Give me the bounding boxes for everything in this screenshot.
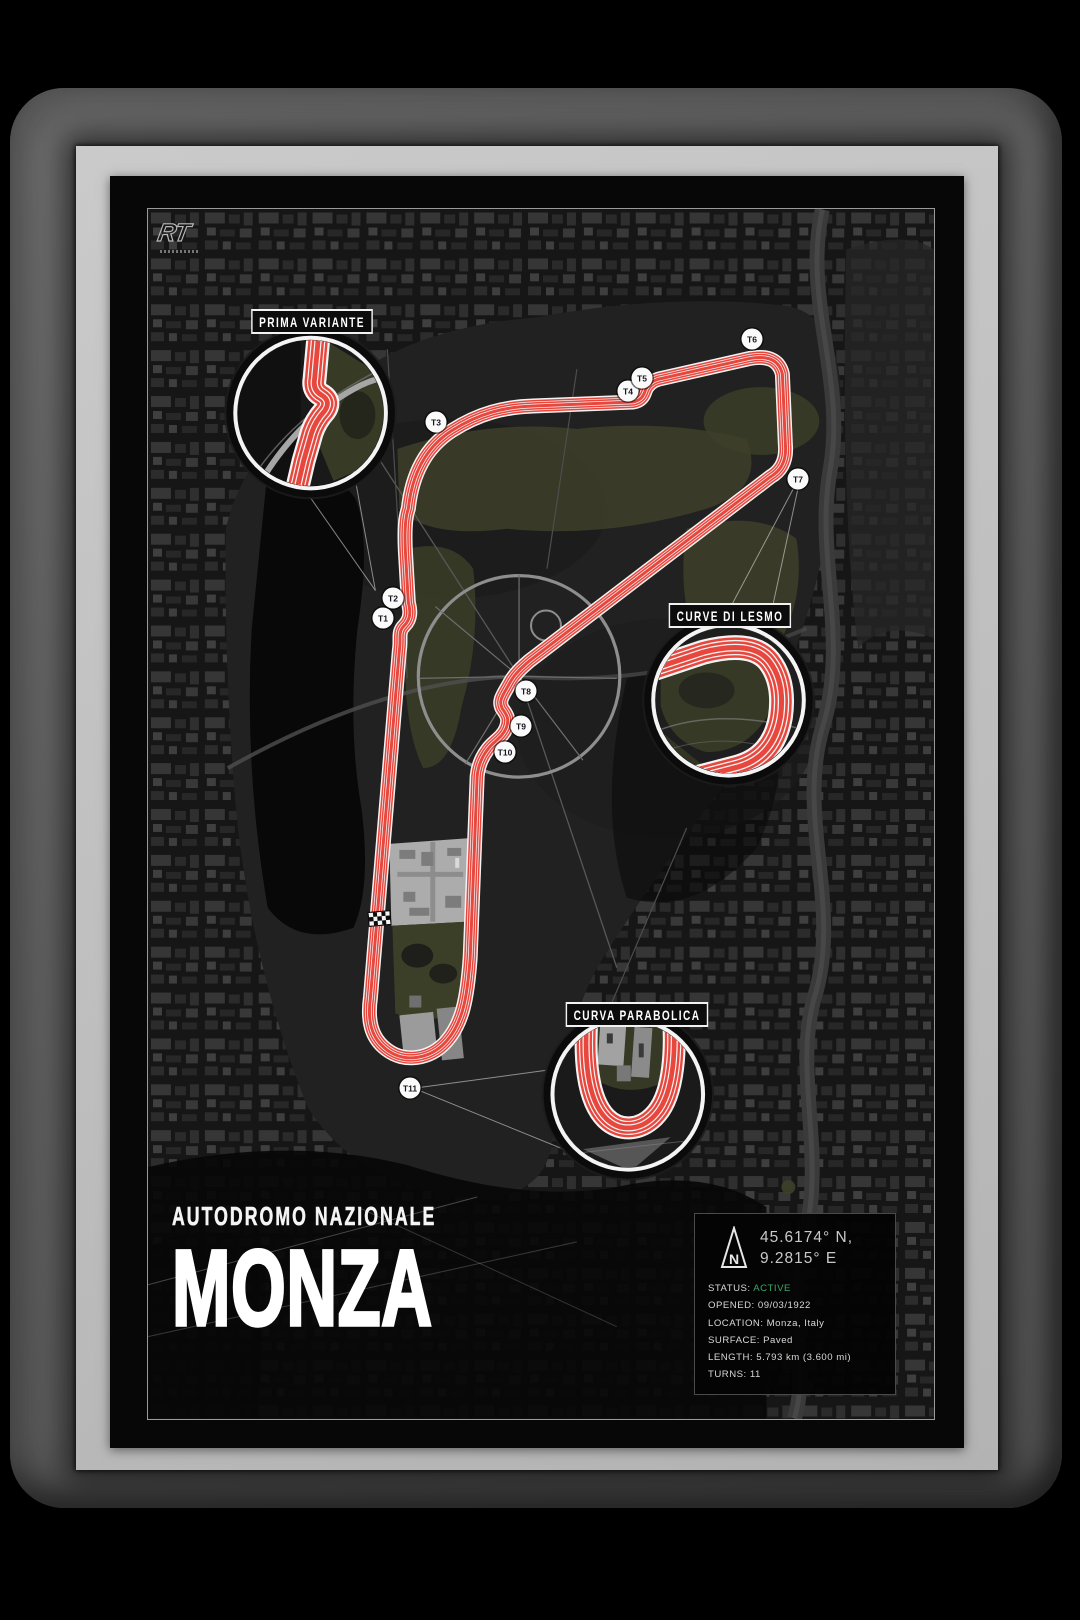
- turn-marker-t2: T2: [383, 588, 404, 609]
- compass-icon: N: [720, 1226, 748, 1270]
- turn-marker-t9: T9: [511, 716, 532, 737]
- brand-tagline-bar: [160, 250, 198, 253]
- turn-marker-t6: T6: [742, 329, 763, 350]
- poster-title: MONZA: [172, 1234, 433, 1342]
- circuit-map-area: RT PRIMA VARIANTE CURVE DI LESMO CURVA P…: [147, 208, 935, 1420]
- brand-logo: RT: [155, 219, 191, 248]
- info-row-status: STATUS: ACTIVE: [708, 1280, 882, 1297]
- info-row-length: LENGTH: 5.793 km (3.600 mi): [708, 1349, 882, 1366]
- info-row-surface: SURFACE: Paved: [708, 1332, 882, 1349]
- callout-label-curve-di-lesmo: CURVE DI LESMO: [669, 603, 792, 628]
- turn-marker-t3: T3: [426, 412, 447, 433]
- framed-poster-scene: RT PRIMA VARIANTE CURVE DI LESMO CURVA P…: [0, 0, 1080, 1620]
- callout-label-prima-variante: PRIMA VARIANTE: [251, 309, 373, 334]
- status-badge: ACTIVE: [753, 1283, 791, 1294]
- info-row-turns: TURNS: 11: [708, 1366, 882, 1383]
- coordinates-line-1: 45.6174° N,: [760, 1228, 853, 1249]
- callout-label-curva-parabolica: CURVA PARABOLICA: [566, 1002, 709, 1027]
- turn-marker-t11: T11: [400, 1078, 421, 1099]
- title-block: AUTODROMO NAZIONALE MONZA: [172, 1201, 573, 1342]
- turn-marker-t5: T5: [632, 368, 653, 389]
- info-row-opened: OPENED: 09/03/1922: [708, 1297, 882, 1314]
- info-row-location: LOCATION: Monza, Italy: [708, 1315, 882, 1332]
- turn-marker-t1: T1: [373, 608, 394, 629]
- info-rows: STATUS: ACTIVE OPENED: 09/03/1922 LOCATI…: [708, 1280, 882, 1384]
- info-panel: N 45.6174° N, 9.2815° E STATUS: ACTIVE O…: [694, 1213, 896, 1395]
- turn-marker-t10: T10: [495, 742, 516, 763]
- inset-curva-parabolica: [543, 1008, 713, 1180]
- start-finish-flag-icon: [367, 910, 391, 927]
- coordinates-line-2: 9.2815° E: [760, 1249, 853, 1270]
- inset-prima-variante: [226, 328, 396, 498]
- compass-north-letter: N: [729, 1251, 739, 1267]
- turn-marker-t7: T7: [788, 469, 809, 490]
- coordinates: 45.6174° N, 9.2815° E: [760, 1228, 853, 1270]
- turn-marker-t8: T8: [516, 681, 537, 702]
